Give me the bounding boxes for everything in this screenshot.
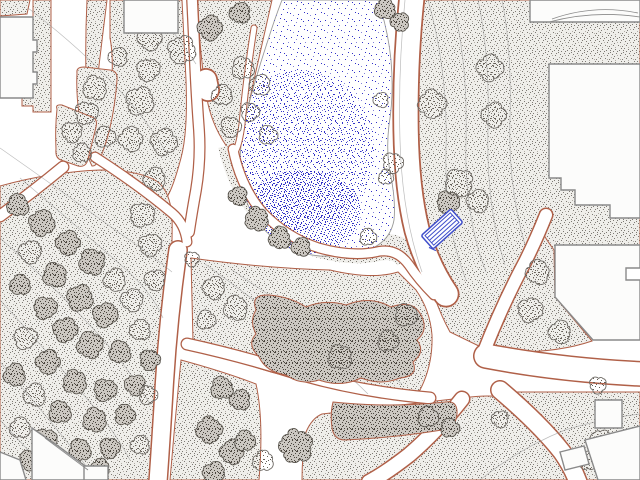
building-west (0, 17, 37, 98)
tree-symbol (328, 345, 352, 369)
bed-corner-nw (0, 0, 30, 16)
tree-symbol (445, 169, 472, 197)
tree-symbol (130, 204, 155, 228)
tree-symbol (126, 87, 154, 116)
site-plan-viewport[interactable] (0, 0, 640, 480)
tree-symbol (108, 47, 127, 66)
walk-east (486, 356, 640, 374)
building-north (124, 0, 178, 33)
site-plan-drawing (0, 0, 640, 480)
tree-symbol-dark (43, 262, 67, 287)
tree-symbol-dark (67, 284, 94, 311)
walk-bulb (206, 80, 208, 90)
walk-upper-left (189, 0, 200, 232)
tree-symbol-dark (228, 187, 247, 206)
building-se-small (595, 400, 622, 428)
building-sw-annex (84, 466, 108, 480)
